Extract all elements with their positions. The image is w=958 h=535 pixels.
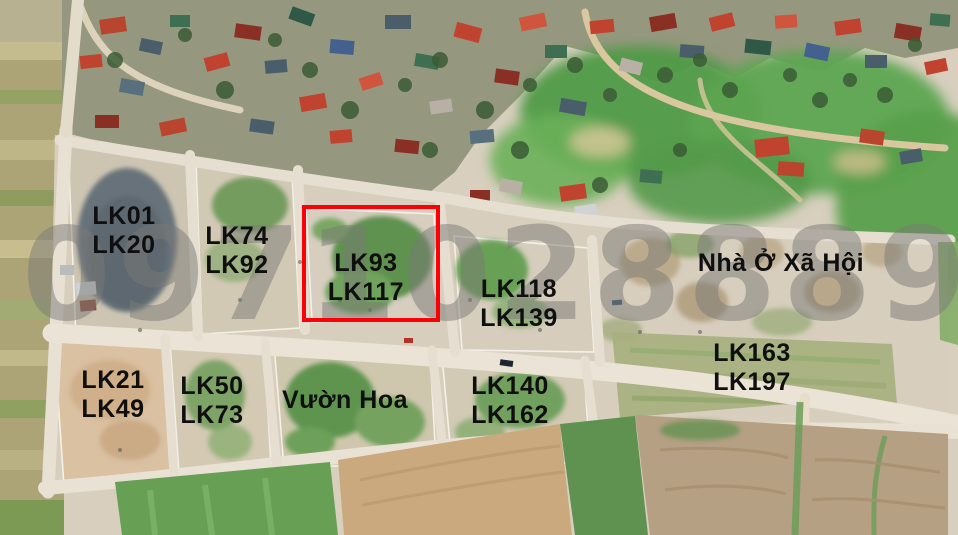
area-label-line: Nhà Ở Xã Hội bbox=[698, 249, 864, 277]
plot-label-line: LK139 bbox=[480, 304, 558, 332]
plot-label-line: LK01 bbox=[92, 202, 155, 230]
plot-label-line: LK49 bbox=[81, 395, 144, 423]
plot-label-line: LK92 bbox=[205, 251, 268, 279]
plot-label-lk21-lk49: LK21 LK49 bbox=[81, 366, 144, 423]
plot-label-lk140-lk162: LK140 LK162 bbox=[471, 372, 549, 429]
plot-label-line: LK50 bbox=[180, 372, 243, 400]
area-label-vuon-hoa: Vườn Hoa bbox=[282, 386, 408, 415]
aerial-site-map: 0971028889 LK01 LK20 LK74 LK92 LK93 LK11… bbox=[0, 0, 958, 535]
plot-label-line: LK140 bbox=[471, 372, 549, 400]
plot-label-line: LK162 bbox=[471, 401, 549, 429]
plot-label-line: LK20 bbox=[92, 231, 155, 259]
plot-label-lk01-lk20: LK01 LK20 bbox=[92, 202, 155, 259]
right-edge-fields bbox=[938, 242, 958, 345]
plot-label-line: LK118 bbox=[481, 275, 557, 303]
highlight-rectangle bbox=[302, 205, 440, 322]
plot-label-lk118-lk139: LK118 LK139 bbox=[480, 275, 558, 332]
plot-label-line: LK73 bbox=[180, 401, 243, 429]
plot-label-lk163-lk197: LK163 LK197 bbox=[713, 339, 791, 396]
area-label-nha-o-xa-hoi: Nhà Ở Xã Hội bbox=[698, 249, 864, 278]
plot-label-line: LK21 bbox=[81, 366, 144, 394]
plot-label-line: LK197 bbox=[713, 368, 791, 396]
plot-label-line: LK163 bbox=[713, 339, 791, 367]
plot-label-lk50-lk73: LK50 LK73 bbox=[180, 372, 243, 429]
plot-label-lk74-lk92: LK74 LK92 bbox=[205, 222, 268, 279]
area-label-line: Vườn Hoa bbox=[282, 386, 408, 414]
plot-label-line: LK74 bbox=[205, 222, 268, 250]
